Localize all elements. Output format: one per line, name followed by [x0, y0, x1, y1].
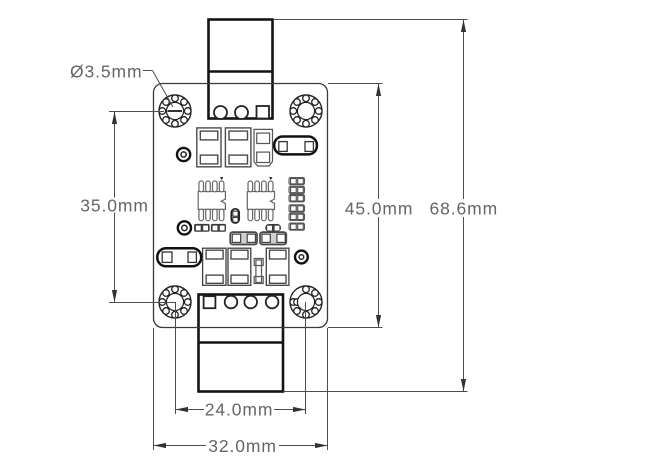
svg-text:32.0mm: 32.0mm	[208, 436, 277, 456]
svg-text:45.0mm: 45.0mm	[345, 199, 414, 219]
svg-text:35.0mm: 35.0mm	[80, 196, 149, 216]
svg-text:68.6mm: 68.6mm	[429, 199, 498, 219]
svg-text:24.0mm: 24.0mm	[205, 400, 274, 420]
svg-text:Ø3.5mm: Ø3.5mm	[70, 62, 143, 82]
